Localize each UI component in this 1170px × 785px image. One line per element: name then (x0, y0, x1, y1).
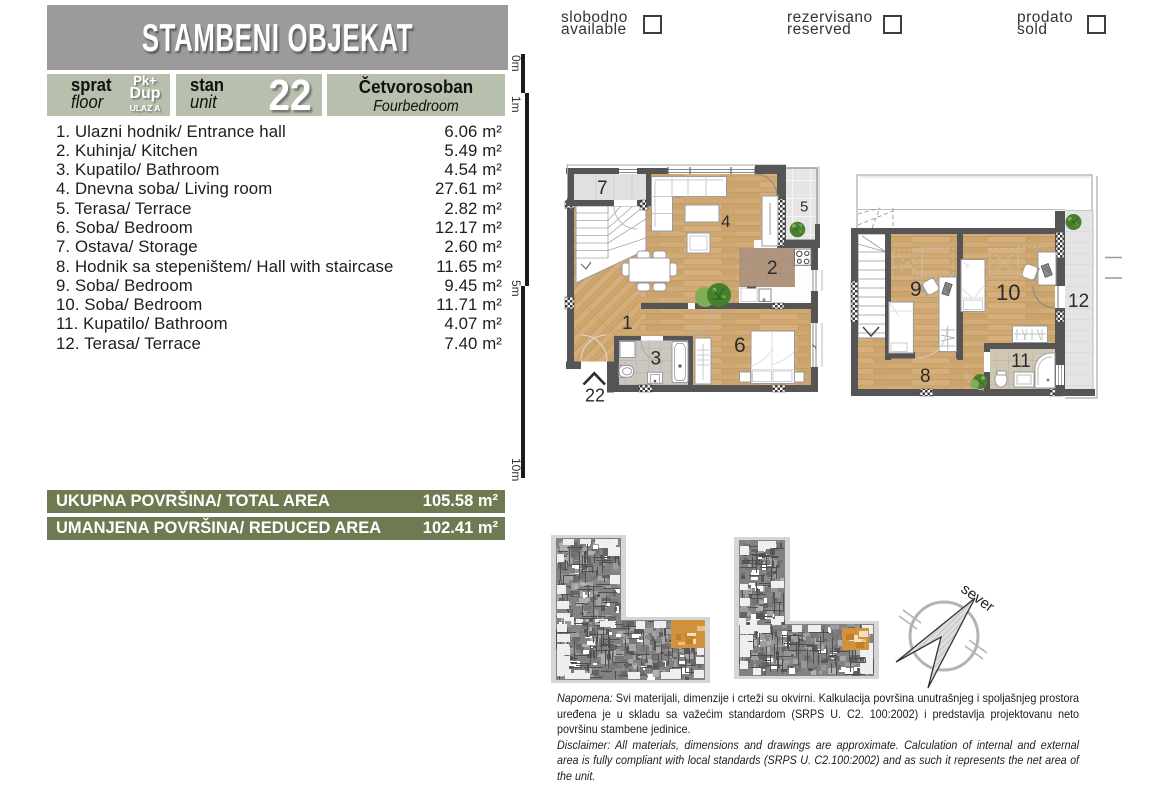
svg-text:9: 9 (910, 278, 922, 301)
svg-text:3: 3 (651, 349, 662, 370)
svg-text:1: 1 (622, 313, 633, 334)
svg-text:6: 6 (734, 334, 746, 357)
svg-text:2: 2 (767, 258, 778, 279)
svg-text:4: 4 (721, 212, 730, 231)
svg-text:5: 5 (800, 199, 808, 216)
svg-text:11: 11 (1011, 351, 1031, 372)
svg-text:10: 10 (996, 280, 1020, 305)
svg-text:7: 7 (597, 178, 608, 199)
svg-text:12: 12 (1068, 291, 1089, 312)
svg-text:22: 22 (585, 386, 605, 406)
svg-text:8: 8 (920, 366, 931, 387)
